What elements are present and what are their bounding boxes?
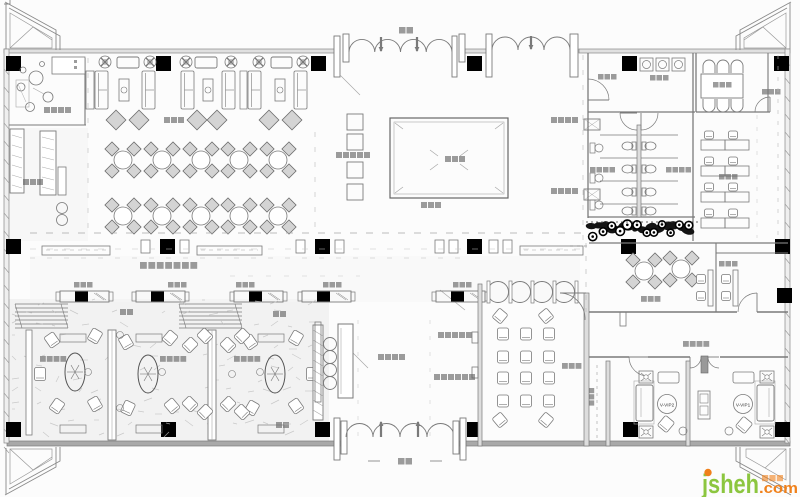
svg-text:V-VIP1: V-VIP1	[736, 403, 751, 408]
svg-text:.com: .com	[759, 480, 798, 497]
svg-text:V-VIP2: V-VIP2	[660, 403, 675, 408]
